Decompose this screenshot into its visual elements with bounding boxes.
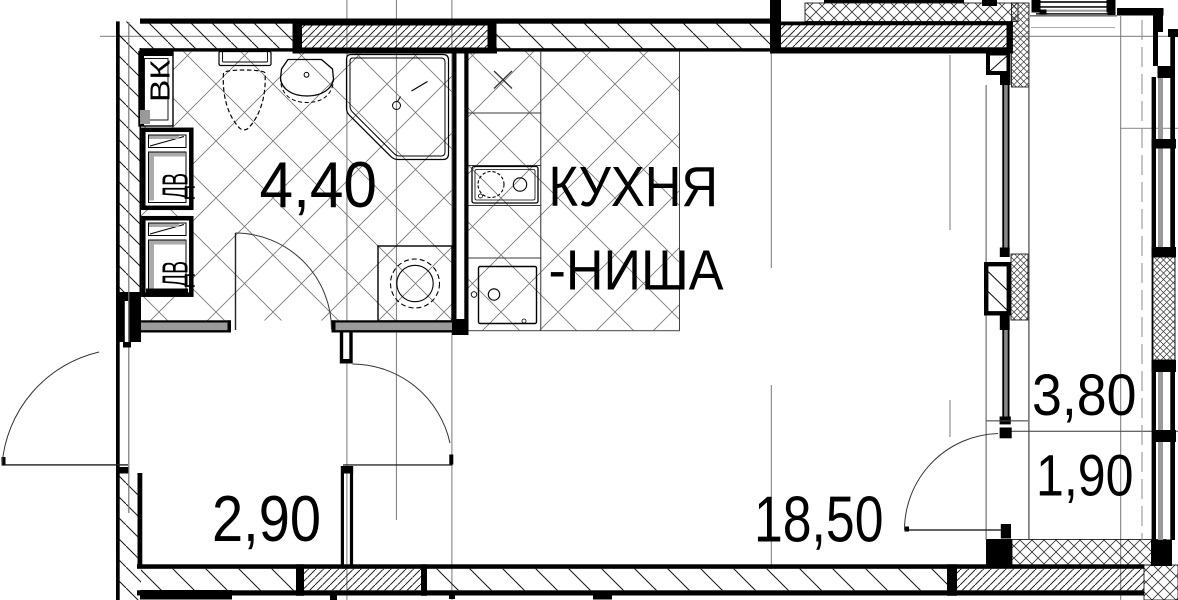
svg-text:18,50: 18,50: [754, 483, 884, 556]
svg-text:ВК: ВК: [145, 59, 176, 102]
svg-text:-НИША: -НИША: [549, 239, 724, 302]
svg-text:ДВ: ДВ: [155, 173, 196, 199]
svg-text:2,90: 2,90: [212, 482, 321, 555]
svg-text:ДВ: ДВ: [155, 261, 196, 287]
svg-text:КУХНЯ: КУХНЯ: [549, 155, 719, 218]
svg-text:1,90: 1,90: [1036, 444, 1134, 509]
svg-text:3,80: 3,80: [1032, 363, 1137, 428]
svg-text:4,40: 4,40: [260, 148, 378, 221]
